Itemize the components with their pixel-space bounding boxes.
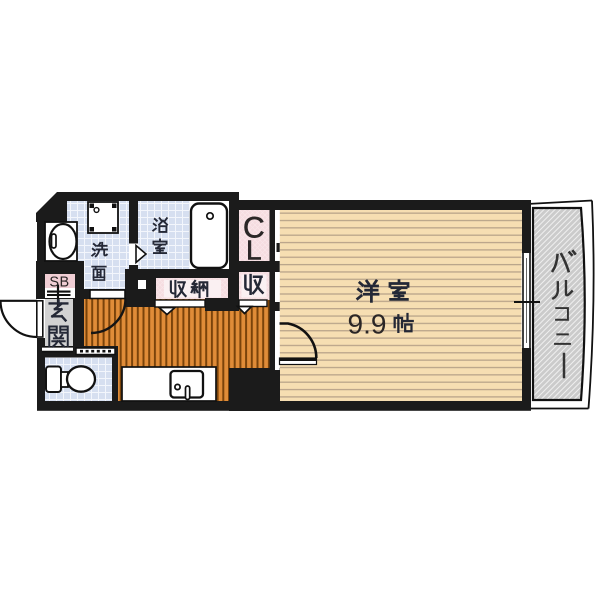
svg-text:L: L xyxy=(246,235,262,266)
svg-text:9.9: 9.9 xyxy=(348,309,387,340)
svg-text:SB: SB xyxy=(49,275,69,291)
